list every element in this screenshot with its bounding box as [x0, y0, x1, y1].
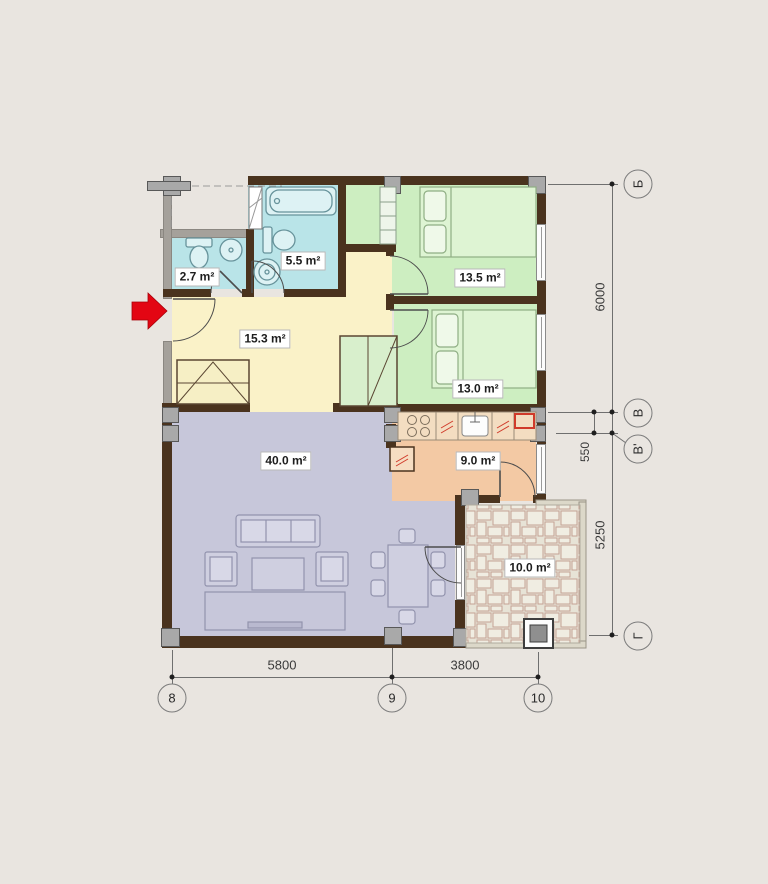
- plan-graphics: [0, 0, 768, 884]
- axis-bubble-b: Б: [624, 170, 653, 199]
- room-label-kitchen: 9.0 m²: [456, 452, 501, 471]
- axis-bubble-g: Г: [624, 622, 653, 651]
- bathtub-icon: [266, 187, 336, 215]
- closet-icon: [380, 187, 396, 244]
- duct-shaft: [249, 187, 262, 229]
- entrance-arrow-icon: [132, 293, 167, 329]
- wardrobe-icon: [340, 336, 397, 406]
- axis-leader-line: [612, 433, 626, 443]
- dimension-line: [172, 677, 538, 678]
- dimension-dot: [610, 633, 615, 638]
- terrace-column: [524, 619, 553, 648]
- bed-icon: [432, 310, 536, 388]
- axis-bubble-10: 10: [524, 684, 553, 713]
- room-label-terrace: 10.0 m²: [504, 559, 555, 578]
- room-label-living: 40.0 m²: [260, 452, 311, 471]
- dimension-dot: [610, 410, 615, 415]
- dimension-dot: [610, 182, 615, 187]
- armchair-icon: [316, 552, 348, 586]
- kitchen-counter: [398, 412, 536, 440]
- axis-bubble-v-prime: В': [624, 435, 653, 464]
- room-label-toilet: 2.7 m²: [175, 268, 220, 287]
- bedroom-upper-door: [390, 256, 428, 294]
- coffee-table-icon: [252, 558, 304, 590]
- axis-bubble-v: В: [624, 399, 653, 428]
- toilet-icon: [263, 227, 295, 253]
- dim-5250: 5250: [593, 521, 608, 550]
- dimension-dot: [390, 675, 395, 680]
- axis-bubble-9: 9: [378, 684, 407, 713]
- room-label-hallway: 15.3 m²: [239, 330, 290, 349]
- fridge-icon: [390, 447, 414, 471]
- hall-closet-icon: [177, 360, 249, 404]
- dimension-dot: [592, 410, 597, 415]
- room-label-bathroom: 5.5 m²: [281, 252, 326, 271]
- dimension-dot: [592, 431, 597, 436]
- bed-icon: [420, 187, 536, 257]
- dim-550: 550: [578, 442, 592, 462]
- room-label-bedroom-lower: 13.0 m²: [452, 380, 503, 399]
- dim-3800: 3800: [451, 658, 480, 673]
- dining-table-icon: [371, 529, 445, 624]
- dimension-dot: [610, 431, 615, 436]
- extension-line: [548, 412, 618, 413]
- dimension-dot: [170, 675, 175, 680]
- dim-6000: 6000: [593, 283, 608, 312]
- sink-icon: [220, 239, 242, 261]
- extension-line: [548, 184, 618, 185]
- room-label-bedroom-upper: 13.5 m²: [454, 269, 505, 288]
- kitchen-terrace-door: [500, 462, 535, 497]
- dimension-dot: [536, 675, 541, 680]
- toilet-icon: [186, 238, 212, 268]
- entrance-door: [173, 299, 215, 341]
- dim-5800: 5800: [268, 658, 297, 673]
- tv-stand-icon: [205, 592, 345, 630]
- sofa-icon: [236, 515, 320, 547]
- armchair-icon: [205, 552, 237, 586]
- kitchen-sink-icon: [462, 412, 488, 436]
- floor-plan: 2.7 m² 5.5 m² 13.5 m² 13.0 m² 15.3 m² 40…: [0, 0, 768, 884]
- axis-bubble-8: 8: [158, 684, 187, 713]
